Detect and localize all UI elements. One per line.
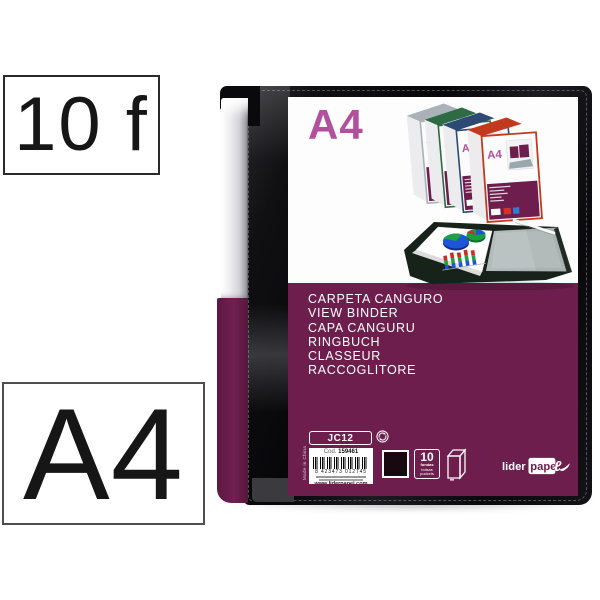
product-code: Cod. 159461 (309, 449, 373, 456)
sheet-count-text: 10 f (14, 87, 149, 163)
product-name-line: RINGBUCH (308, 335, 443, 349)
brand-swash-l: ℓ (554, 459, 562, 475)
paper-size-badge: A4 (2, 382, 205, 525)
product-photo: 10 f A4 A4 A4 (0, 0, 600, 600)
product-name-line: CLASSEUR (308, 349, 443, 363)
liderpapel-logo: lider pape ℓ (502, 455, 572, 477)
recycling-icon (376, 430, 389, 443)
brand-text-pape: pape (530, 461, 556, 473)
pockets-count-box: 10 fundas bolsas pockets (414, 449, 440, 479)
barcode-label: Cod. 159461 8 423473 012745 www.liderpap… (309, 448, 373, 484)
address-microtext (316, 476, 366, 478)
purple-cover-edge (217, 298, 248, 503)
product-montage-image: A4 A4 A4 (396, 94, 580, 290)
open-binder-image (404, 220, 574, 290)
barcode (313, 457, 369, 469)
label-format-text: A4 (308, 104, 364, 146)
sheet-count-badge: 10 f (3, 75, 160, 175)
code-prefix: Cod. (324, 449, 337, 455)
sku-box: JC12 (309, 431, 372, 445)
origin-text: Made in China (302, 436, 307, 480)
product-name-line: CARPETA CANGURO (308, 292, 443, 306)
mini-format-text: A4 (487, 149, 503, 162)
barcode-digits: 8 423473 012745 (309, 469, 373, 475)
binder-outline-icon (445, 447, 469, 481)
spine-reflection (244, 86, 290, 505)
code-value: 159461 (338, 449, 358, 455)
product-name-line: RACCOGLITORE (308, 363, 443, 377)
sku-text: JC12 (328, 433, 354, 444)
product-name-line: CAPA CANGURU (308, 321, 443, 335)
view-binder-product: A4 A4 A4 (214, 84, 600, 520)
color-swatch-black (382, 450, 409, 478)
pockets-words: fundas bolsas pockets (415, 463, 439, 477)
brand-text-lider: lider (502, 461, 526, 473)
paper-size-text: A4 (23, 389, 184, 519)
website-text: www.liderpapel.com (309, 481, 373, 484)
product-name-list: CARPETA CANGURO VIEW BINDER CAPA CANGURU… (308, 292, 443, 378)
metal-clip (221, 98, 248, 300)
pockets-word: pockets (415, 472, 439, 477)
product-name-line: VIEW BINDER (308, 306, 443, 320)
